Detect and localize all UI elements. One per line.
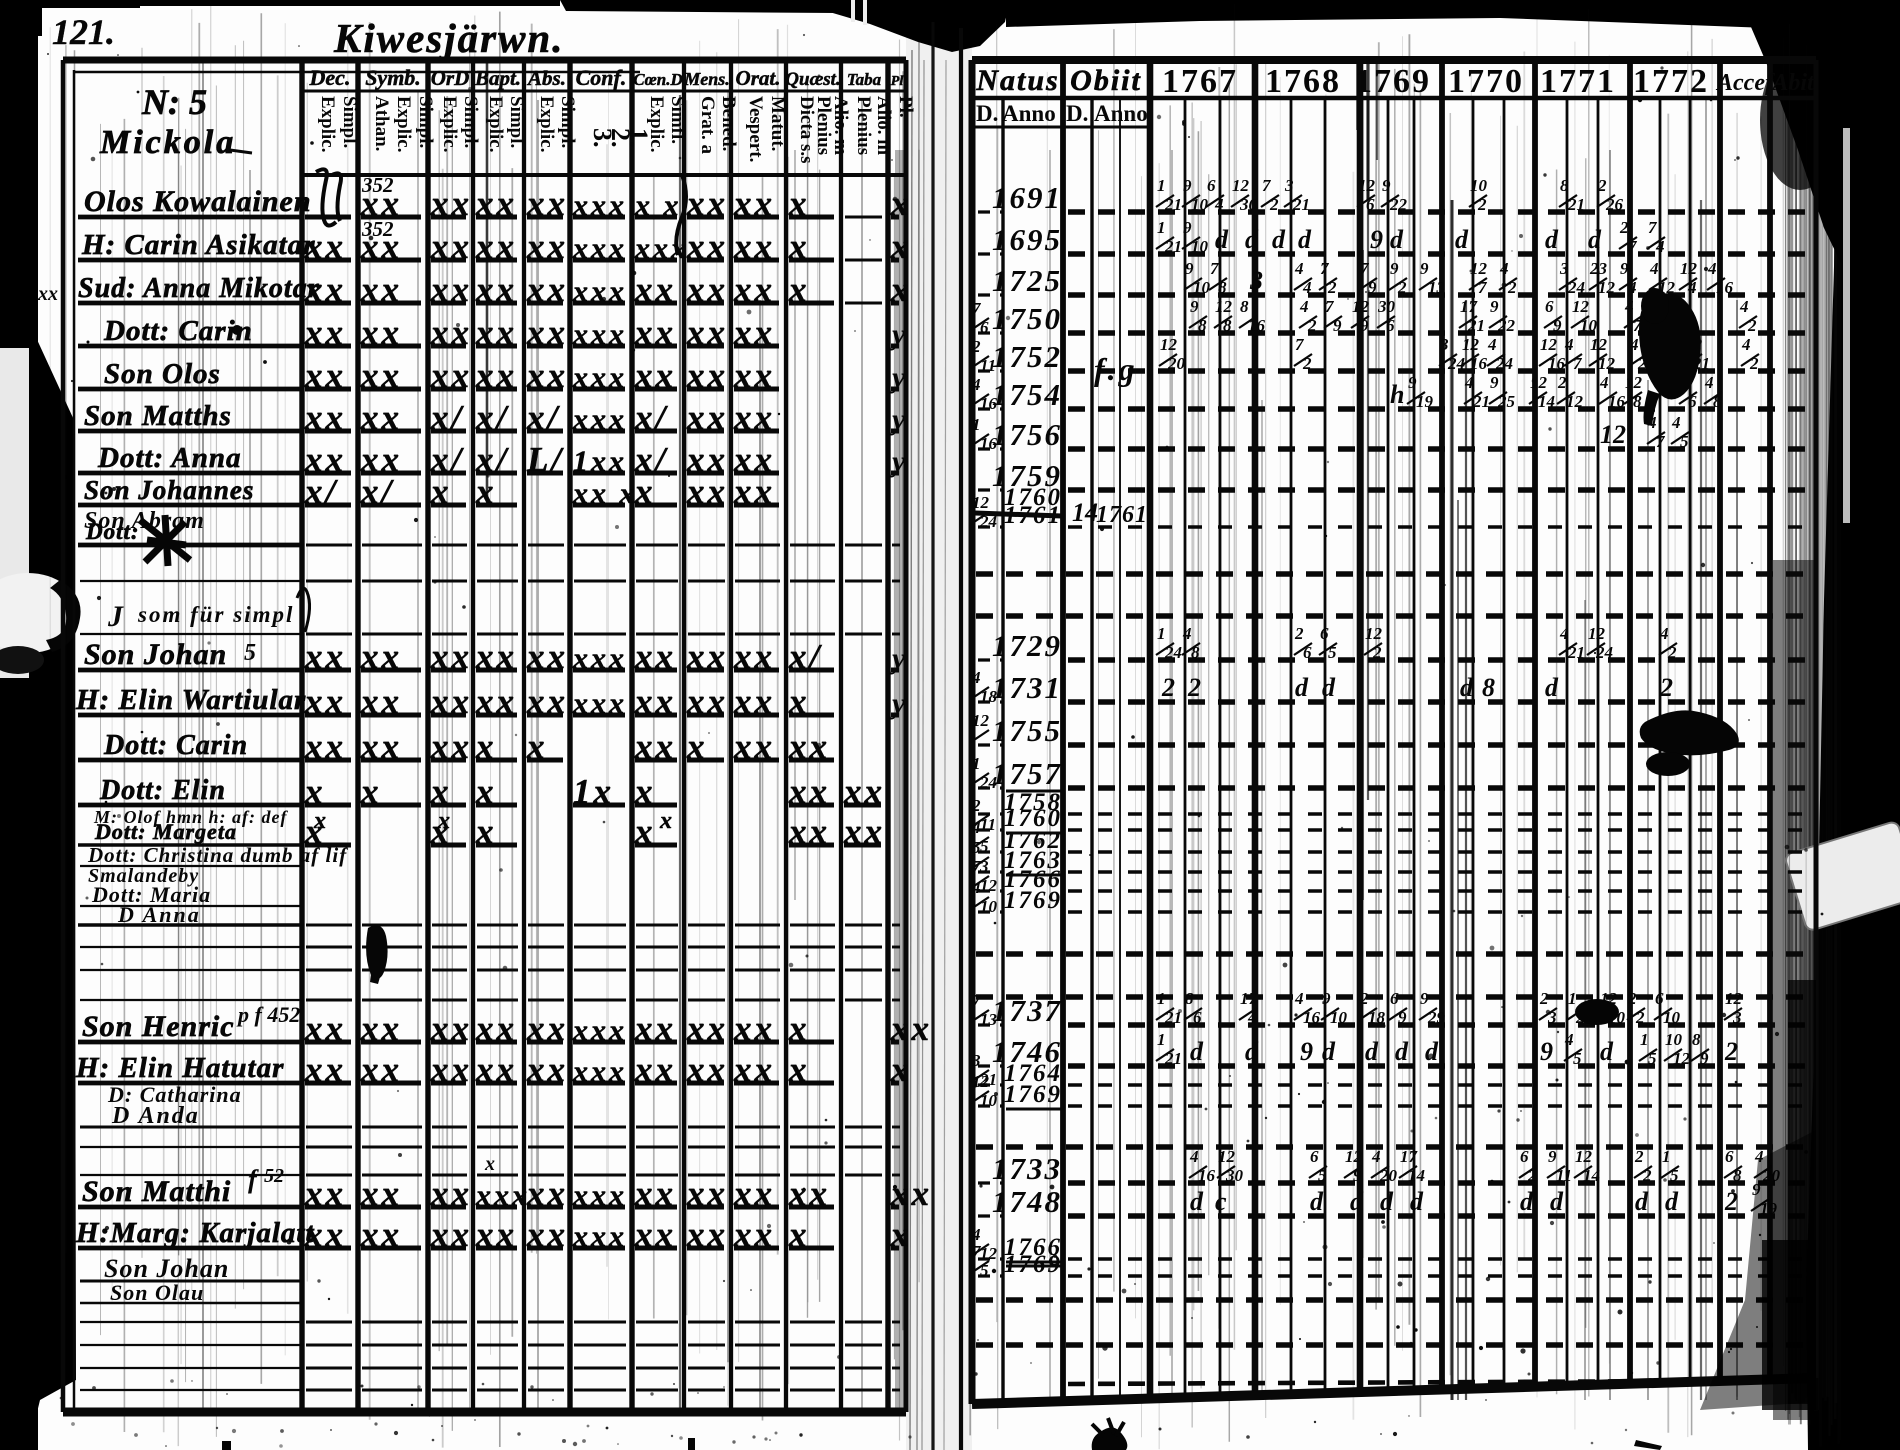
svg-text:1737: 1737 [992,993,1062,1028]
svg-text:19: 19 [1416,392,1434,411]
svg-text:9: 9 [1370,225,1383,254]
svg-text:xx: xx [304,313,346,352]
svg-text:x: x [634,472,656,511]
svg-text:20: 20 [1167,354,1186,373]
svg-text:6: 6 [1320,624,1329,643]
svg-text:Dec.: Dec. [309,65,351,90]
svg-text:xx: xx [430,1009,472,1048]
svg-text:1: 1 [1568,989,1577,1008]
svg-text:24: 24 [1595,643,1613,662]
svg-text:16: 16 [1303,1008,1321,1027]
svg-text:xx: xx [733,184,775,223]
svg-text:2: 2 [1619,218,1629,237]
svg-text:12: 12 [972,493,990,512]
svg-text:xx: xx [733,1215,775,1254]
svg-text:8: 8 [1692,1030,1701,1049]
svg-text:12: 12 [1566,392,1584,411]
svg-text:9: 9 [1300,1037,1313,1066]
svg-text:xx: xx [526,637,568,676]
svg-text:2: 2 [1557,373,1567,392]
svg-text:xx: xx [686,270,728,309]
svg-text:Taba: Taba [847,70,882,89]
svg-text:17: 17 [1400,1147,1419,1166]
svg-text:xx: xx [475,1009,517,1048]
svg-text:x: x [430,812,452,851]
svg-text:xx: xx [634,682,676,721]
svg-text:11: 11 [980,356,996,375]
svg-text:Dott: Margeta: Dott: Margeta [94,819,237,844]
svg-text:1: 1 [972,415,981,434]
svg-text:2: 2 [1659,673,1673,702]
svg-text:Plenius: Plenius [853,96,874,155]
svg-text:16: 16 [1548,354,1566,373]
svg-text:xx: xx [430,227,472,266]
svg-text:xx: xx [475,227,517,266]
svg-text:Alio. m: Alio. m [873,96,894,155]
svg-text:xx: xx [686,637,728,676]
svg-text:x: x [788,682,810,721]
svg-text:Simpl.: Simpl. [460,96,481,148]
svg-text:10: 10 [1580,316,1598,335]
svg-text:xx: xx [430,727,472,766]
svg-text:12: 12 [1215,297,1233,316]
svg-text:x/: x/ [304,472,339,511]
svg-text:xx: xx [475,682,517,721]
svg-text:30: 30 [1239,195,1258,214]
svg-text:16: 16 [1608,392,1626,411]
svg-text:d: d [1635,1187,1649,1216]
svg-text:xxx: xxx [572,1014,627,1047]
svg-text:Dott:: Dott: [85,519,140,544]
svg-text:Symb.: Symb. [365,65,421,90]
svg-text:14: 14 [1408,1166,1425,1185]
svg-text:9: 9 [1322,989,1331,1008]
svg-text:Anno: Anno [1094,101,1148,126]
svg-text:x: x [475,727,497,766]
svg-text:xxx: xxx [572,1220,627,1253]
svg-text:H: Carin Asikatar: H: Carin Asikatar [81,229,315,261]
svg-text:1: 1 [1640,1030,1649,1049]
svg-text:5: 5 [972,838,981,857]
svg-text:1767: 1767 [1162,63,1238,100]
svg-text:p f 452: p f 452 [236,1002,300,1027]
svg-text:x: x [634,772,656,811]
svg-text:xx: xx [686,1009,728,1048]
svg-text:Obiit: Obiit [1070,64,1142,97]
svg-text:12: 12 [1345,1147,1363,1166]
svg-text:xx: xx [526,1174,568,1213]
svg-text:29: 29 [1427,1008,1446,1027]
svg-text:d: d [1365,1037,1379,1066]
svg-text:21: 21 [1467,316,1485,335]
svg-text:c: c [1215,1187,1227,1216]
svg-text:24: 24 [1164,643,1182,662]
svg-text:16: 16 [980,394,998,413]
svg-text:12: 12 [1530,373,1548,392]
svg-text:Natus: Natus [975,64,1059,97]
svg-text:H: Elin Wartiular: H: Elin Wartiular [75,684,306,716]
svg-text:1691: 1691 [992,180,1062,215]
svg-text:Son Henric: Son Henric [82,1010,235,1043]
svg-text:N: 5: N: 5 [141,82,207,122]
svg-text:x: x [659,808,672,834]
svg-text:4: 4 [1464,373,1474,392]
svg-text:4: 4 [1182,624,1192,643]
svg-text:d: d [1588,225,1602,254]
svg-text:xx: xx [890,1174,932,1213]
svg-text:xx: xx [733,727,775,766]
svg-text:1756: 1756 [992,417,1062,452]
svg-text:Mickola: Mickola [99,124,236,161]
svg-text:4: 4 [1294,989,1304,1008]
svg-text:9: 9 [1490,297,1499,316]
svg-text:12: 12 [1625,373,1643,392]
svg-text:d: d [1295,673,1309,702]
svg-text:21: 21 [1164,1049,1182,1068]
svg-text:Son Johan: Son Johan [84,638,227,671]
svg-text:xx: xx [733,270,775,309]
svg-text:1769: 1769 [1355,63,1431,100]
svg-text:1770: 1770 [1448,63,1524,100]
svg-text:xx: xx [733,682,775,721]
svg-text:x: x [475,812,497,851]
svg-text:Quæst.: Quæst. [785,69,840,90]
svg-text:21: 21 [1472,392,1490,411]
svg-text:1: 1 [1157,218,1166,237]
svg-text:9: 9 [1420,989,1429,1008]
svg-text:x: x [788,227,810,266]
svg-text:4: 4 [1294,259,1304,278]
svg-text:Simpl.: Simpl. [339,96,360,148]
svg-text:2: 2 [971,796,981,815]
svg-text:1754: 1754 [992,377,1062,412]
svg-text:2: 2 [1597,176,1607,195]
svg-text:4: 4 [1189,1147,1199,1166]
svg-text:xx: xx [304,356,346,395]
svg-text:4: 4 [1649,259,1659,278]
svg-text:1x: 1x [573,772,614,811]
svg-text:4: 4 [1559,624,1569,643]
svg-text:d: d [1245,1037,1259,1066]
svg-text:Explic.: Explic. [439,96,460,152]
svg-text:x: x [484,1153,495,1175]
svg-text:9: 9 [1390,259,1399,278]
svg-text:9: 9 [1490,373,1499,392]
svg-text:xx: xx [733,1009,775,1048]
svg-text:4: 4 [971,375,981,394]
svg-text:20: 20 [1379,1166,1398,1185]
svg-text:Anno: Anno [1002,101,1056,126]
svg-text:x: x [890,227,912,266]
svg-text:12: 12 [1572,297,1590,316]
svg-text:1750: 1750 [992,301,1062,336]
svg-text:1769: 1769 [1004,1251,1062,1278]
svg-text:xx: xx [526,313,568,352]
svg-text:xx: xx [634,637,676,676]
svg-text:12: 12 [1600,420,1626,449]
svg-text:12: 12 [1352,297,1370,316]
svg-text:x: x [890,184,912,223]
svg-text:xx: xx [304,1050,346,1089]
svg-text:1757: 1757 [992,756,1062,791]
svg-text:2: 2 [1294,624,1304,643]
svg-text:xx: xx [430,1050,472,1089]
svg-text:d: d [1460,673,1474,702]
svg-text:Pl: Pl [891,74,904,89]
svg-text:4: 4 [1564,1030,1574,1049]
svg-text:21: 21 [1164,195,1182,214]
svg-text:4: 4 [1741,335,1751,354]
svg-text:12: 12 [1232,176,1250,195]
svg-text:xx: xx [475,356,517,395]
svg-text:xx: xx [526,356,568,395]
svg-text:12: 12 [972,1072,990,1091]
svg-text:xx: xx [304,398,346,437]
svg-text:4: 4 [1707,259,1717,278]
svg-text:12: 12 [1575,1147,1593,1166]
svg-text:6: 6 [1725,1147,1734,1166]
svg-text:Explic.: Explic. [536,96,557,152]
svg-text:16: 16 [980,434,998,453]
svg-text:10: 10 [980,897,998,916]
svg-text:10: 10 [1191,237,1209,256]
svg-text:xx: xx [360,313,402,352]
svg-text:xxx: xxx [572,687,627,720]
svg-text:xx: xx [634,1050,676,1089]
svg-text:x: x [475,472,497,511]
svg-text:xxx: xxx [572,1179,627,1212]
svg-text:Dott: Christina dumb af lif: Dott: Christina dumb af lif [87,843,348,867]
svg-text:1761: 1761 [1096,502,1148,528]
svg-text:4: 4 [1671,413,1681,432]
svg-text:3: 3 [1439,335,1449,354]
svg-text:xx: xx [686,1050,728,1089]
svg-text:x: x [304,772,326,811]
svg-text:d: d [1322,673,1336,702]
svg-text:13: 13 [980,1010,998,1029]
svg-text:d: d [1215,225,1229,254]
svg-text:25: 25 [1497,392,1516,411]
svg-text:12: 12 [1365,624,1383,643]
svg-text:Simpl.: Simpl. [557,96,578,148]
svg-text:2: 2 [1359,989,1369,1008]
svg-text:4: 4 [1624,297,1634,316]
svg-text:xxx: xxx [572,275,627,308]
svg-text:xx: xx [843,812,885,851]
svg-text:9: 9 [1620,259,1629,278]
svg-text:xx: xx [304,727,346,766]
svg-text:xx: xx [304,1174,346,1213]
svg-text:x/: x/ [430,398,465,437]
svg-text:xx: xx [686,313,728,352]
svg-text:14: 14 [1538,392,1555,411]
svg-text:1.: 1. [624,128,653,148]
svg-text:Grat. a: Grat. a [697,96,718,155]
svg-text:21: 21 [1567,643,1585,662]
svg-text:9: 9 [1183,218,1192,237]
svg-text:24: 24 [979,773,997,792]
svg-text:xx: xx [475,313,517,352]
svg-text:x: x [788,1009,810,1048]
svg-text:4: 4 [1659,624,1669,643]
svg-text:Pl.: Pl. [895,96,916,118]
svg-text:xx: xx [430,184,472,223]
svg-text:xx: xx [304,227,346,266]
svg-text:4: 4 [1564,335,1574,354]
svg-text:xx: xx [475,1050,517,1089]
svg-text:21: 21 [1164,237,1182,256]
svg-text:Orat.: Orat. [736,66,781,90]
svg-text:6: 6 [1545,297,1554,316]
svg-text:16: 16 [1248,316,1266,335]
svg-text:10: 10 [1665,1030,1683,1049]
svg-text:4: 4 [1599,373,1609,392]
svg-text:xx: xx [304,270,346,309]
svg-text:6: 6 [1520,1147,1529,1166]
svg-text:Vespert.: Vespert. [745,96,766,162]
svg-text:xx: xx [788,1174,830,1213]
svg-text:9: 9 [1548,1147,1557,1166]
svg-text:18: 18 [1368,1008,1386,1027]
svg-text:xxx: xxx [572,642,627,675]
svg-text:xx: xx [843,772,885,811]
svg-text:x: x [475,772,497,811]
svg-text:Matut.: Matut. [767,96,788,151]
svg-text:xx: xx [360,1050,402,1089]
svg-text:xx: xx [788,772,830,811]
svg-text:6: 6 [1390,989,1399,1008]
svg-text:y: y [889,318,906,351]
svg-text:10: 10 [1191,195,1209,214]
svg-text:24: 24 [1447,354,1465,373]
svg-text:1: 1 [1157,624,1166,643]
svg-text:xx: xx [733,227,775,266]
svg-text:xx: xx [733,356,775,395]
svg-text:8: 8 [1560,176,1569,195]
svg-text:xx: xx [360,637,402,676]
svg-text:x: x [890,1215,912,1254]
svg-text:xx: xx [686,356,728,395]
svg-text:14: 14 [1583,1166,1600,1185]
svg-text:21: 21 [1164,1008,1182,1027]
svg-text:13: 13 [1428,278,1446,297]
svg-text:h: h [1390,380,1404,409]
svg-text:Bened.: Bened. [718,96,739,151]
svg-text:f.g: f.g [1094,351,1138,387]
svg-text:Abit: Abit [1770,70,1815,96]
svg-text:xx: xx [430,356,472,395]
svg-text:16: 16 [1198,1166,1216,1185]
svg-text:d: d [1520,1187,1534,1216]
svg-text:d: d [1272,225,1286,254]
svg-text:d: d [1390,225,1404,254]
svg-text:Abs.: Abs. [526,66,566,90]
svg-text:121.: 121. [52,12,115,52]
svg-text:2: 2 [1539,989,1549,1008]
svg-text:Son Matthi: Son Matthi [82,1175,231,1208]
svg-text:xx: xx [360,1174,402,1213]
svg-text:y: y [889,687,906,720]
svg-text:d: d [1395,1037,1409,1066]
svg-text:xx: xx [634,313,676,352]
svg-text:xx: xx [360,1009,402,1048]
svg-text:2: 2 [1724,1187,1738,1216]
svg-text:12: 12 [1218,1147,1236,1166]
svg-text:x: x [890,270,912,309]
svg-text:12: 12 [1598,354,1616,373]
svg-text:1731: 1731 [992,670,1062,705]
svg-text:xx: xx [526,1050,568,1089]
svg-text:xx: xx [686,682,728,721]
svg-text:1725: 1725 [992,263,1062,298]
svg-text:som für simpl: som für simpl [137,602,294,627]
svg-text:9: 9 [1408,373,1417,392]
svg-text:12: 12 [1540,335,1558,354]
svg-text:12: 12 [1462,335,1480,354]
svg-text:x: x [788,1215,810,1254]
svg-text:d: d [1410,1187,1424,1216]
svg-text:xx x: xx x [572,477,638,510]
svg-text:H: Elin Hatutar: H: Elin Hatutar [75,1052,284,1084]
svg-text:xx: xx [733,1050,775,1089]
svg-text:4: 4 [1629,335,1639,354]
svg-text:Son Olau: Son Olau [110,1280,204,1305]
svg-text:24: 24 [1567,278,1585,297]
svg-text:xx: xx [788,812,830,851]
svg-text:17: 17 [1460,297,1479,316]
svg-text:1755: 1755 [992,713,1062,748]
svg-text:Accef: Accef [1715,70,1775,96]
svg-text:xx: xx [475,270,517,309]
svg-text:3: 3 [1284,176,1294,195]
svg-text:x: x [686,727,708,766]
svg-text:xx: xx [733,1174,775,1213]
svg-text:x: x [430,472,452,511]
svg-text:d: d [1545,225,1559,254]
svg-text:x: x [788,270,810,309]
svg-text:xx: xx [304,1215,346,1254]
svg-text:Son Matths: Son Matths [84,400,232,432]
svg-text:1752: 1752 [992,339,1062,374]
svg-text:xx: xx [788,727,830,766]
svg-text:y: y [889,403,906,436]
svg-text:1xx: 1xx [573,445,627,478]
svg-text:d: d [1455,225,1469,254]
svg-text:1: 1 [1662,1147,1671,1166]
svg-text:1: 1 [1157,989,1166,1008]
svg-text:xxx: xxx [572,403,627,436]
svg-text:30: 30 [1377,297,1396,316]
svg-text:xx: xx [890,1009,932,1048]
svg-text:3: 3 [1249,266,1263,295]
svg-text:22: 22 [1389,195,1408,214]
svg-text:1768: 1768 [1265,63,1341,100]
svg-text:x/: x/ [634,398,669,437]
svg-text:Simpl.: Simpl. [415,96,436,148]
svg-text:xx: xx [634,1174,676,1213]
svg-text:12: 12 [1673,1049,1691,1068]
svg-text:xx: xx [360,727,402,766]
svg-text:Alio. m: Alio. m [830,96,851,155]
svg-text:J: J [107,600,124,633]
svg-text:xx: xx [360,227,402,266]
svg-text:12: 12 [1588,624,1606,643]
svg-text:xx: xx [304,682,346,721]
svg-text:y: y [889,445,906,478]
svg-text:x: x [788,1050,810,1089]
svg-text:xx: xx [475,637,517,676]
svg-text:9: 9 [1420,259,1429,278]
